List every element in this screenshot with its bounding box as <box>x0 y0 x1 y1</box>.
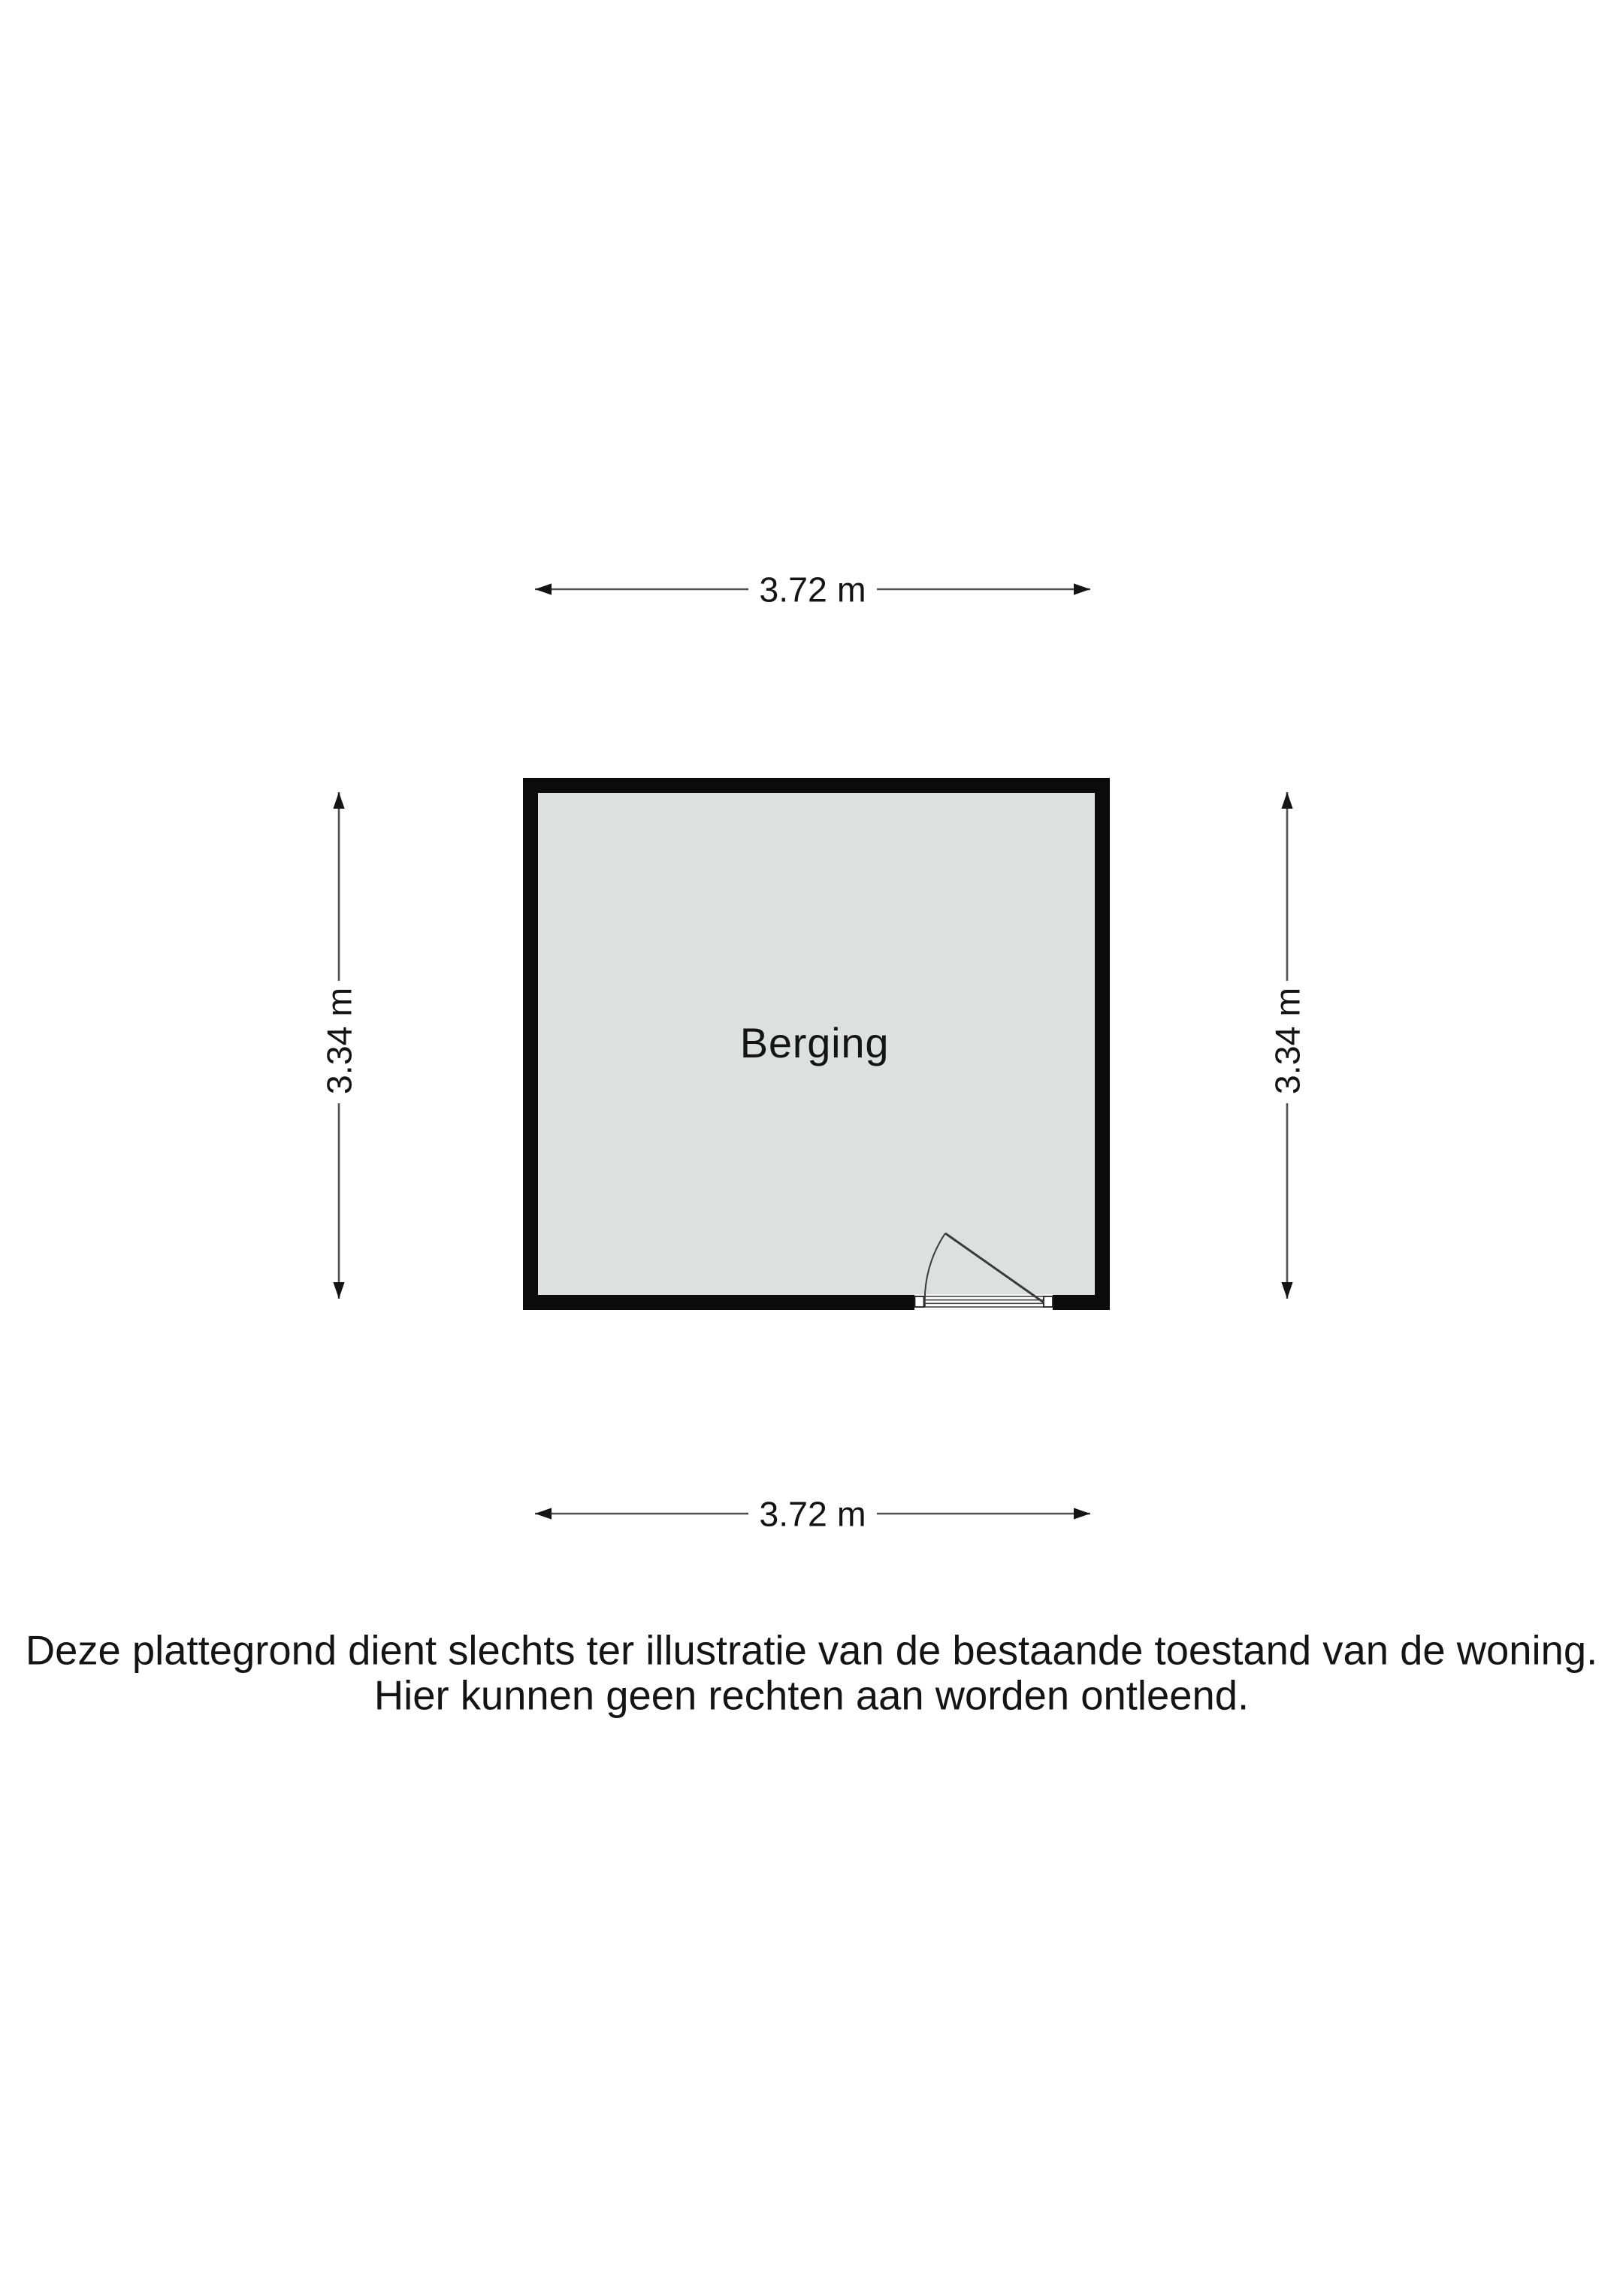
svg-text:3.72 m: 3.72 m <box>759 1495 866 1534</box>
svg-text:Berging: Berging <box>740 1019 890 1066</box>
svg-text:3.34 m: 3.34 m <box>320 988 359 1094</box>
svg-text:3.72 m: 3.72 m <box>759 570 866 610</box>
svg-text:3.34 m: 3.34 m <box>1268 988 1307 1094</box>
svg-text:Deze plattegrond dient slechts: Deze plattegrond dient slechts ter illus… <box>26 1627 1597 1673</box>
svg-text:Hier kunnen geen rechten aan w: Hier kunnen geen rechten aan worden ontl… <box>374 1672 1249 1718</box>
